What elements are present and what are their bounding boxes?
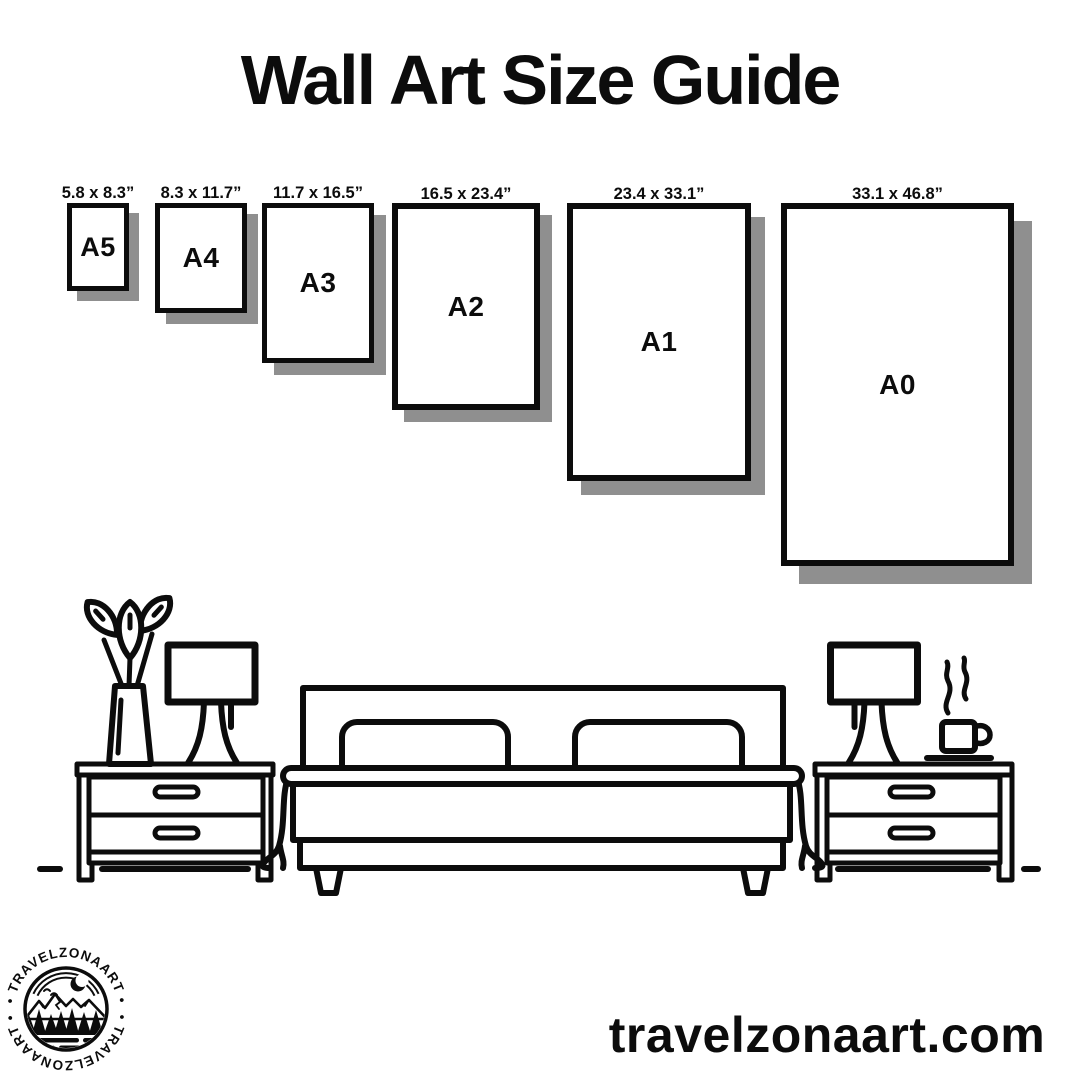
brand-logo: • TRAVELZONAART • • TRAVELZONAART • xyxy=(0,942,133,1076)
nightstand-left-icon xyxy=(77,764,273,880)
bed-base xyxy=(300,840,783,868)
website-url: travelzonaart.com xyxy=(577,1008,1077,1063)
size-guide-poster: { "title": "Wall Art Size Guide", "sizes… xyxy=(0,0,1080,1080)
bed-icon xyxy=(262,688,822,893)
nightstand-right-icon xyxy=(815,764,1012,880)
flower-vase-icon xyxy=(80,592,176,764)
bedroom-scene xyxy=(0,0,1080,1080)
table-lamp-right-icon xyxy=(831,645,918,763)
table-lamp-left-icon xyxy=(168,645,255,763)
coffee-cup-icon xyxy=(927,658,991,758)
bed-leg-right xyxy=(743,868,768,893)
bed-leg-left xyxy=(316,868,341,893)
mattress xyxy=(293,784,790,840)
